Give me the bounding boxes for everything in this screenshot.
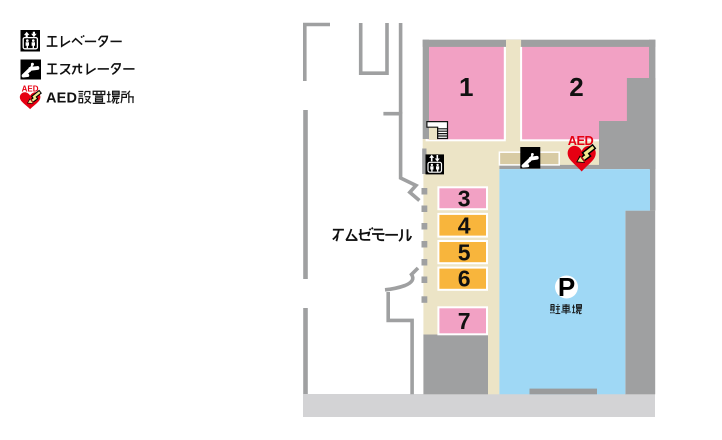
svg-text:2: 2	[569, 72, 583, 102]
svg-text:1: 1	[459, 72, 473, 102]
svg-text:7: 7	[458, 308, 471, 334]
svg-text:5: 5	[458, 239, 471, 265]
svg-text:3: 3	[458, 186, 471, 212]
svg-text:6: 6	[458, 266, 471, 292]
svg-text:AED: AED	[46, 91, 77, 107]
svg-text:P: P	[558, 272, 575, 302]
svg-text:4: 4	[458, 213, 471, 239]
